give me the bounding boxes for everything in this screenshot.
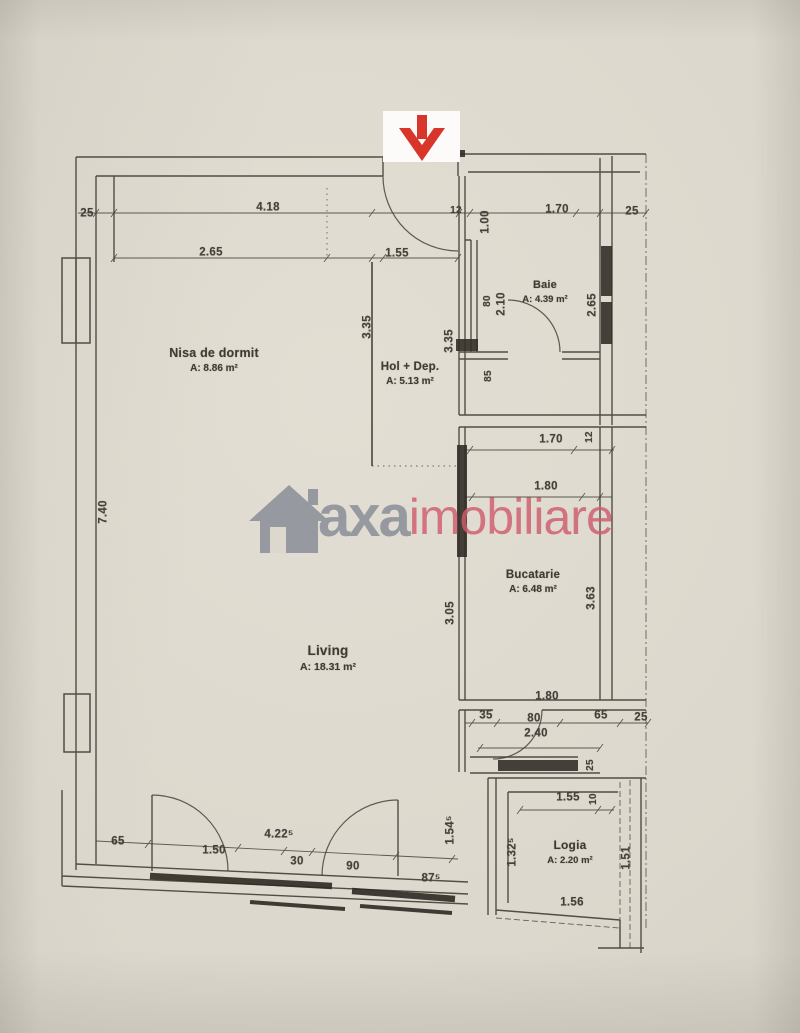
- scanned-floor-plan-photo: axa imobiliare Nisa de dormit A: 8.86 m²…: [0, 0, 800, 1033]
- dimension-label: 1.80: [534, 481, 558, 493]
- dimension-label: 1.56: [560, 897, 584, 909]
- room-label-hol-dep: Hol + Dep. A: 5.13 m²: [381, 361, 440, 387]
- dimension-label: 30: [290, 856, 303, 868]
- dimension-label: 3.35: [444, 329, 456, 353]
- dimension-label: 65: [111, 836, 124, 848]
- dimension-label: 1.55: [385, 248, 409, 260]
- hidden-lines: [327, 154, 646, 950]
- dimension-label: 2.10: [496, 292, 508, 316]
- dimension-label: 85: [484, 370, 494, 382]
- dimension-label: 90: [346, 861, 359, 873]
- dimension-label: 1.54⁵: [445, 815, 457, 844]
- dimension-label: 25: [586, 759, 596, 771]
- room-label-living: Living A: 18.31 m²: [300, 643, 356, 673]
- walls: [62, 154, 646, 953]
- dimension-label: 25: [625, 206, 638, 218]
- dimension-label: 65: [594, 710, 607, 722]
- dimension-label: 4.22⁵: [264, 829, 293, 841]
- dimension-label: 12: [585, 431, 595, 443]
- dimension-label: 10: [589, 793, 599, 805]
- dimension-label: 2.65: [587, 293, 599, 317]
- dimension-label: 1.51: [621, 846, 633, 870]
- room-label-nisa-de-dormit: Nisa de dormit A: 8.86 m²: [169, 346, 259, 374]
- dimension-label: 1.50: [202, 845, 226, 857]
- dimension-label: 3.05: [445, 601, 457, 625]
- wall-fills-and-shaft: [452, 150, 612, 771]
- dimension-label: 2.40: [524, 728, 548, 740]
- dimension-label: 3.35: [362, 315, 374, 339]
- room-label-bucatarie: Bucatarie A: 6.48 m²: [506, 569, 560, 595]
- dimension-label: 4.18: [256, 202, 280, 214]
- room-label-baie: Baie A: 4.39 m²: [522, 279, 567, 305]
- dimension-label: 25: [80, 208, 93, 220]
- entrance-arrow-icon: [383, 111, 461, 165]
- room-label-logia: Logia A: 2.20 m²: [547, 838, 592, 866]
- dimension-label: 80: [527, 713, 540, 725]
- dimension-label: 1.00: [480, 210, 492, 234]
- dimension-label: 2.65: [199, 247, 223, 259]
- dimension-label: 1.55: [556, 792, 580, 804]
- dimension-label: 1.70: [545, 204, 569, 216]
- dimension-label: 1.80: [535, 691, 559, 703]
- dimension-label: 12: [450, 206, 462, 216]
- dimension-label: 1.70: [539, 434, 563, 446]
- dimension-label: 7.40: [98, 500, 110, 524]
- dimension-label: 80: [483, 295, 493, 307]
- dimension-label: 25: [634, 712, 647, 724]
- dimension-label: 87⁵: [421, 873, 440, 885]
- window-bars: [150, 876, 455, 913]
- dimension-label: 1.32⁵: [507, 837, 519, 866]
- dimension-label: 3.63: [586, 586, 598, 610]
- dimension-label: 35: [479, 710, 492, 722]
